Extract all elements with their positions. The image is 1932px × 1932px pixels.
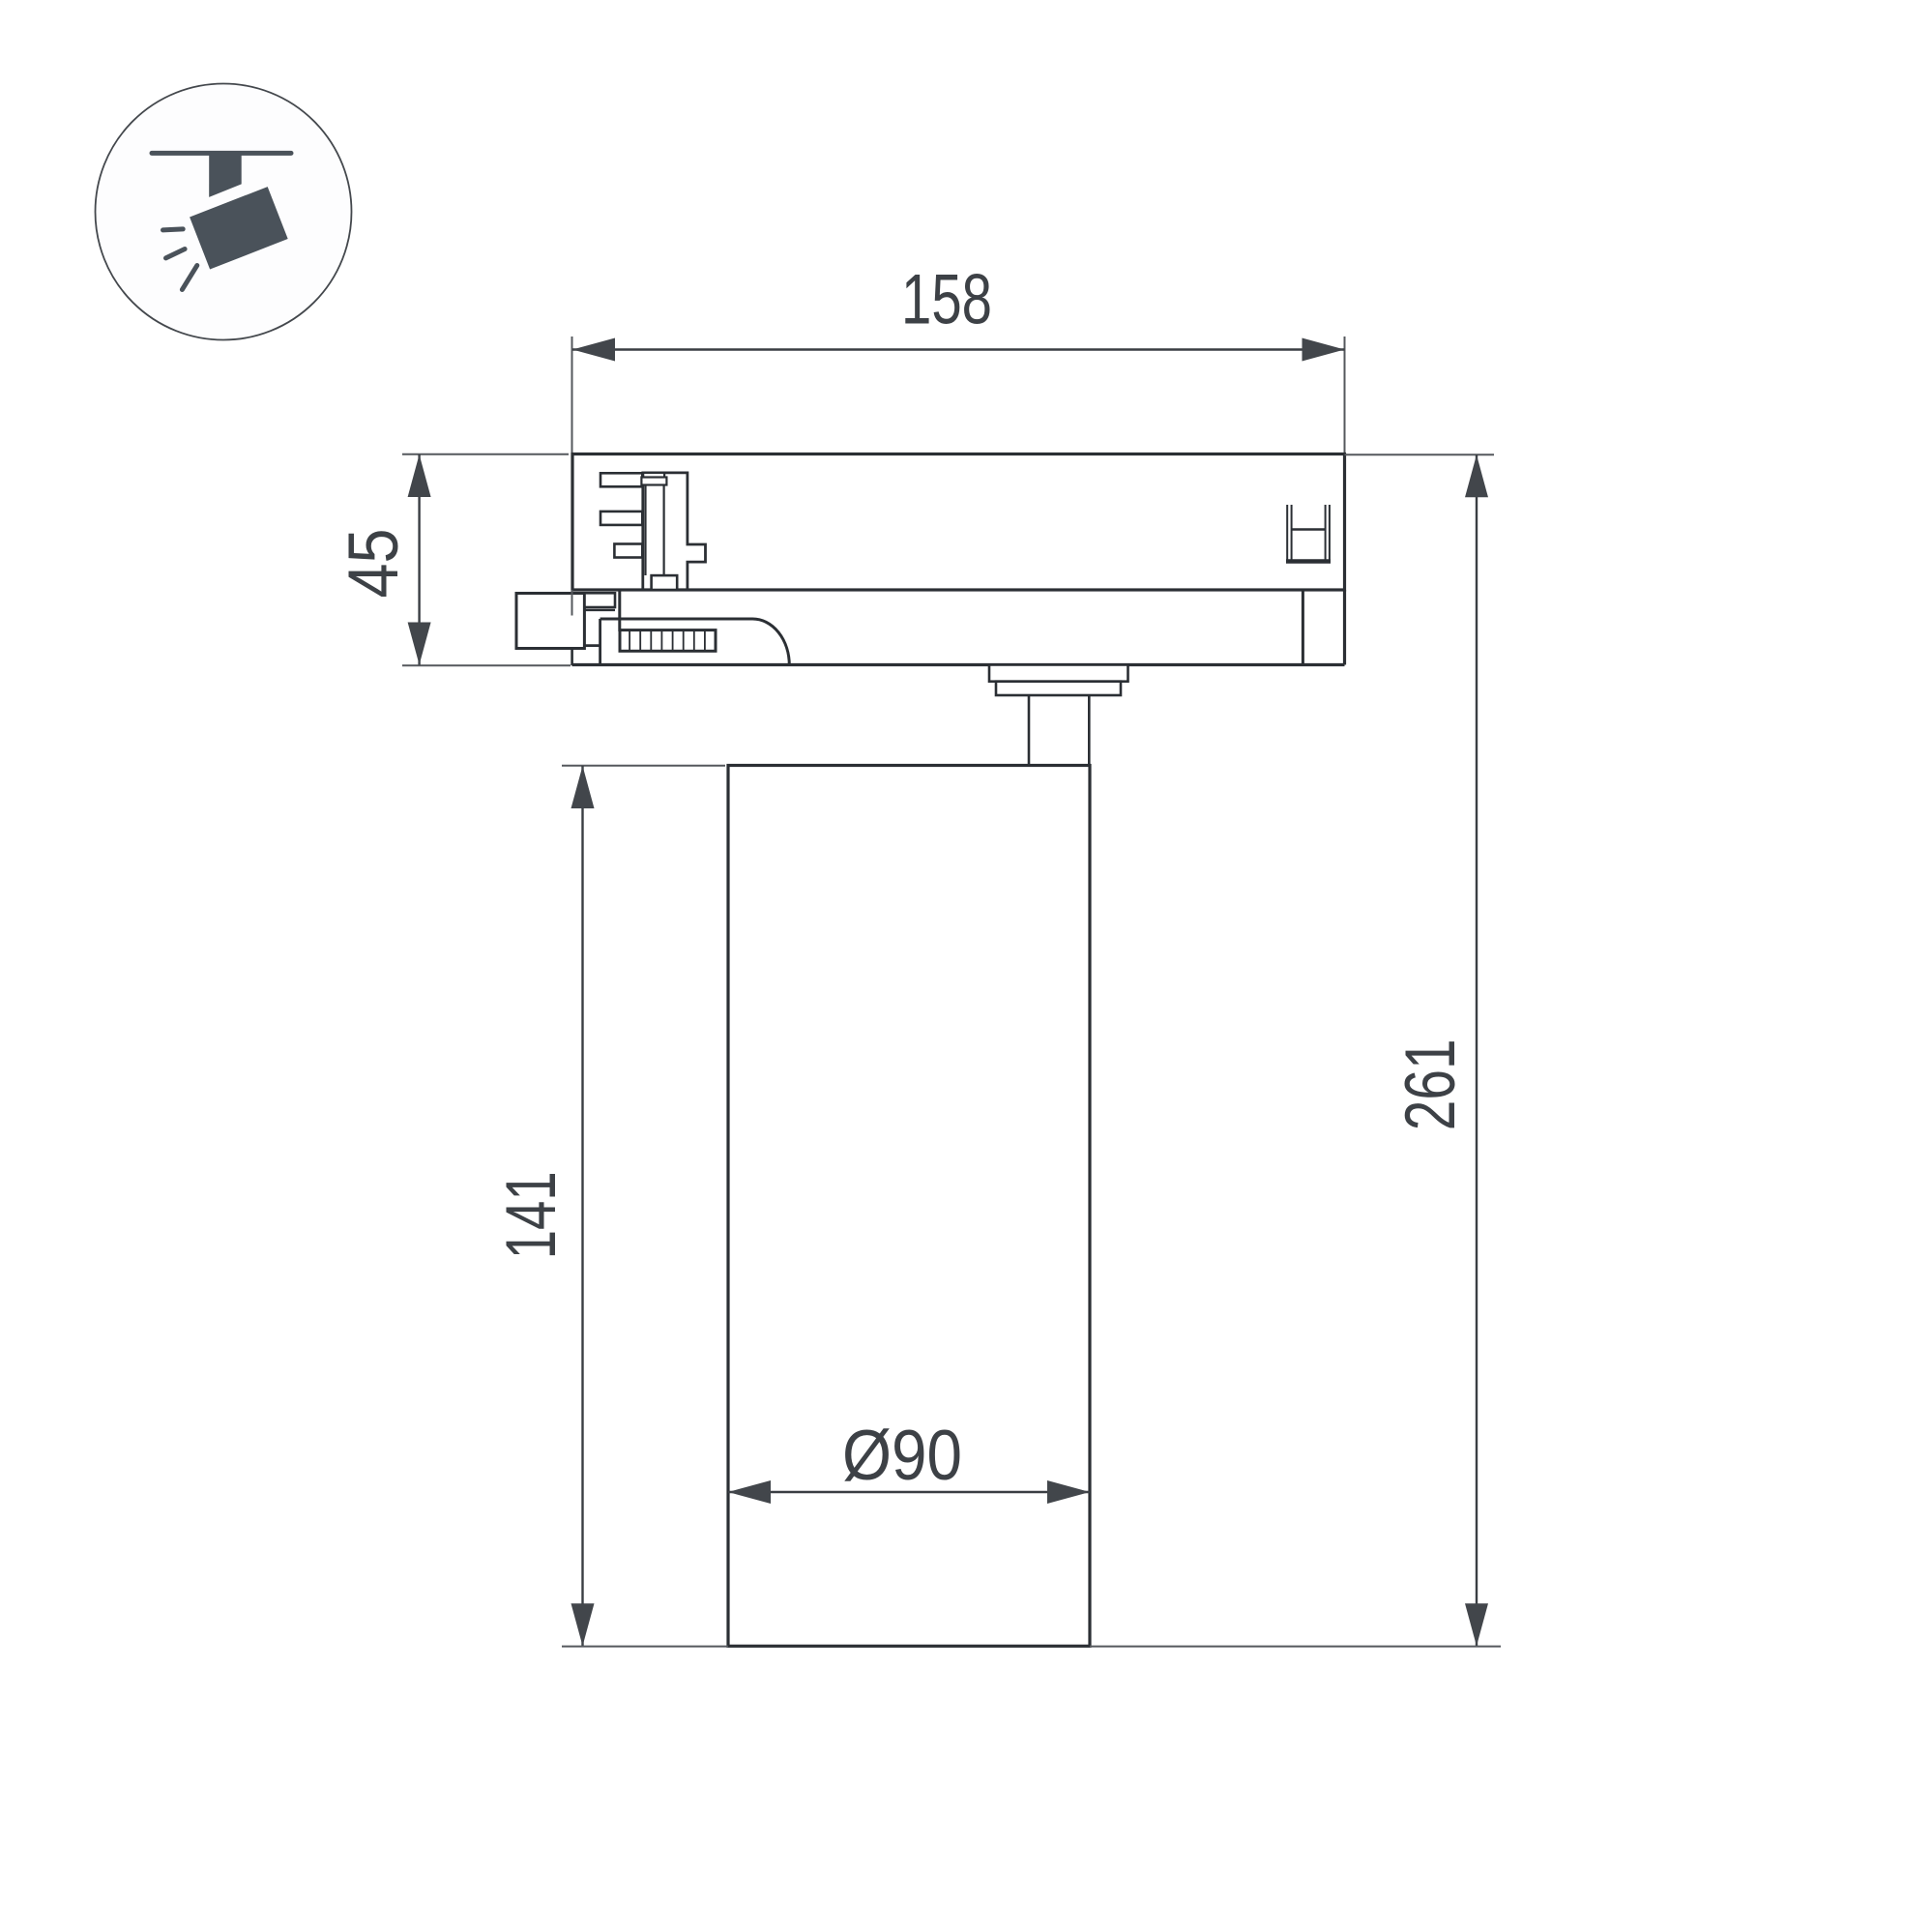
svg-text:45: 45 <box>335 529 413 599</box>
svg-text:158: 158 <box>901 261 992 339</box>
svg-text:Ø90: Ø90 <box>842 1417 962 1495</box>
svg-text:141: 141 <box>492 1171 571 1259</box>
svg-text:261: 261 <box>1391 1039 1470 1130</box>
